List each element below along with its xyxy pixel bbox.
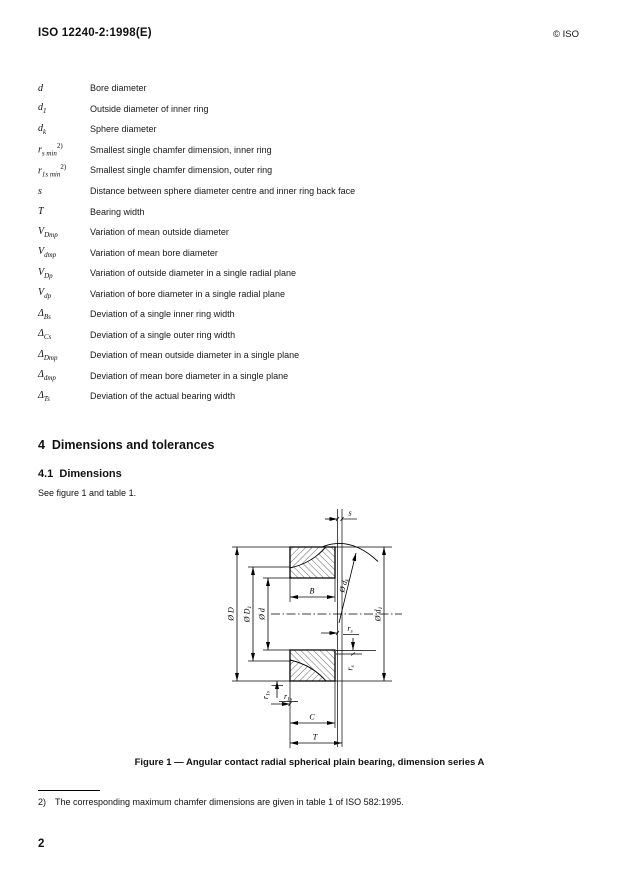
copyright-notice: © ISO (553, 29, 579, 40)
dim-label-B: B (310, 587, 315, 596)
symbol-definition: Bore diameter (90, 83, 147, 93)
symbol: VDp (38, 267, 90, 280)
symbol-definition: Variation of mean bore diameter (90, 248, 218, 258)
dim-label-r1s-side: r1s (261, 691, 272, 699)
symbol-row: ΔdmpDeviation of mean bore diameter in a… (38, 366, 578, 387)
subsection-heading: 4.1 Dimensions (38, 468, 122, 480)
symbol-definition: Variation of outside diameter in a singl… (90, 268, 296, 278)
figure-caption: Figure 1 — Angular contact radial spheri… (0, 757, 619, 768)
symbol-row: VdpVariation of bore diameter in a singl… (38, 283, 578, 304)
footnote-text: The corresponding maximum chamfer dimens… (55, 797, 404, 807)
symbol-row: sDistance between sphere diameter centre… (38, 181, 578, 202)
symbol-definition: Deviation of mean bore diameter in a sin… (90, 371, 288, 381)
symbol-row: ΔDmpDeviation of mean outside diameter i… (38, 345, 578, 366)
symbol: r1s min2) (38, 163, 90, 178)
footnote-rule (38, 790, 100, 791)
symbol: VDmp (38, 226, 90, 239)
symbol-row: ΔCsDeviation of a single outer ring widt… (38, 325, 578, 346)
section-body-text: See figure 1 and table 1. (38, 488, 136, 498)
symbol: T (38, 206, 90, 217)
symbol-row: TBearing width (38, 201, 578, 222)
symbol: ΔTs (38, 390, 90, 403)
section-heading: 4 Dimensions and tolerances (38, 438, 214, 452)
symbol-row: dBore diameter (38, 78, 578, 99)
dim-label-s: s (348, 509, 351, 518)
symbol: d (38, 83, 90, 94)
symbol: rs min2) (38, 142, 90, 157)
dim-label-r1s-bottom: r1s (284, 692, 292, 703)
symbol: dk (38, 123, 90, 136)
symbol-row: dkSphere diameter (38, 119, 578, 140)
symbol-row: VdmpVariation of mean bore diameter (38, 242, 578, 263)
dim-label-rs-top: rs (347, 624, 352, 635)
symbol-row: ΔTsDeviation of the actual bearing width (38, 386, 578, 407)
symbol-definition: Outside diameter of inner ring (90, 104, 209, 114)
symbol-row: r1s min2)Smallest single chamfer dimensi… (38, 160, 578, 181)
symbol-definition: Deviation of a single outer ring width (90, 330, 235, 340)
symbol-row: VDpVariation of outside diameter in a si… (38, 263, 578, 284)
dim-label-phi-D1: Ø D1 (243, 606, 254, 624)
symbol: Vdp (38, 287, 90, 300)
figure-1-drawing: Ø D Ø D1 Ø d Ø d1 Ø dk B C T s rs rs r1s… (220, 505, 415, 760)
symbol-row: rs min2)Smallest single chamfer dimensio… (38, 140, 578, 161)
symbol-definition: Variation of mean outside diameter (90, 227, 229, 237)
dim-label-T: T (313, 733, 318, 742)
symbol-row: ΔBsDeviation of a single inner ring widt… (38, 304, 578, 325)
symbol-definition: Variation of bore diameter in a single r… (90, 289, 285, 299)
symbol: ΔBs (38, 308, 90, 321)
symbol: s (38, 186, 90, 197)
symbol-definition: Deviation of the actual bearing width (90, 391, 235, 401)
lower-ring-section (290, 650, 335, 681)
symbol: ΔCs (38, 328, 90, 341)
symbol-definition: Deviation of a single inner ring width (90, 309, 235, 319)
symbol-definition: Deviation of mean outside diameter in a … (90, 350, 299, 360)
symbol-row: d1Outside diameter of inner ring (38, 99, 578, 120)
symbol-definition: Distance between sphere diameter centre … (90, 186, 355, 196)
symbol: ΔDmp (38, 349, 90, 362)
symbol-definition: Smallest single chamfer dimension, outer… (90, 165, 272, 175)
symbol-definition: Smallest single chamfer dimension, inner… (90, 145, 272, 155)
dim-label-C: C (309, 713, 315, 722)
dim-label-phi-dk: Ø dk (337, 577, 351, 595)
symbol: d1 (38, 102, 90, 115)
symbol-row: VDmpVariation of mean outside diameter (38, 222, 578, 243)
symbol-definition: Bearing width (90, 207, 145, 217)
footnote-marker: 2) (38, 797, 46, 807)
symbol-list: dBore diameterd1Outside diameter of inne… (38, 78, 578, 407)
symbol: Vdmp (38, 246, 90, 259)
footnote: 2)The corresponding maximum chamfer dime… (38, 797, 404, 807)
page-number: 2 (38, 838, 44, 850)
upper-ring-section (290, 547, 335, 578)
document-number: ISO 12240-2:1998(E) (38, 27, 152, 39)
symbol: Δdmp (38, 369, 90, 382)
dim-label-rs-side: rs (346, 665, 357, 670)
symbol-definition: Sphere diameter (90, 124, 157, 134)
dim-label-phi-d: Ø d (258, 607, 267, 621)
dim-label-phi-D: Ø D (227, 607, 236, 622)
